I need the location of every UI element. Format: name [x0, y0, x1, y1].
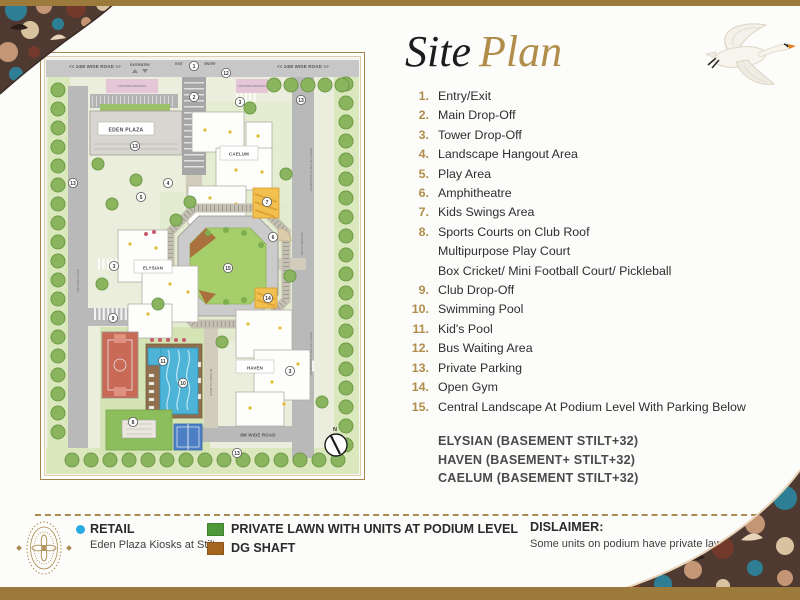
private-lawn-swatch-icon [207, 523, 224, 536]
ramp-label: RAMP TO PODIUM [209, 368, 213, 396]
tree [96, 278, 108, 290]
svg-text:3: 3 [113, 264, 116, 270]
site-plan-svg: << 24M WIDE ROAD >> << 24M WIDE ROAD >> … [40, 52, 365, 480]
bottom-gold-bar [0, 587, 800, 600]
tree [51, 273, 65, 287]
svg-text:2: 2 [193, 95, 196, 101]
svg-text:14: 14 [265, 296, 271, 302]
top-gold-bar [0, 0, 800, 6]
map-marker-3: 3 [285, 366, 294, 375]
tree [255, 453, 269, 467]
map-marker-14: 14 [263, 293, 272, 302]
tree [122, 453, 136, 467]
site-plan-list-item: 4.Landscape Hangout Area [405, 148, 795, 161]
tree [51, 330, 65, 344]
tree [51, 349, 65, 363]
site-plan-list-item: 14.Open Gym [405, 381, 795, 394]
tree [339, 305, 353, 319]
tree [152, 298, 164, 310]
map-marker-10: 10 [178, 378, 187, 387]
map-marker-3: 3 [109, 261, 118, 270]
caelum-label: CAELUM [229, 152, 249, 157]
svg-text:12: 12 [223, 71, 229, 77]
tree [51, 292, 65, 306]
tree [103, 453, 117, 467]
map-marker-3: 3 [235, 97, 244, 106]
site-plan-list-item: 6.Amphitheatre [405, 187, 795, 200]
site-plan-list-item: 5.Play Area [405, 168, 795, 181]
map-marker-11: 11 [158, 356, 167, 365]
legend-private-lawn: PRIVATE LAWN WITH UNITS AT PODIUM LEVEL [207, 522, 518, 536]
haven-label: HAVEN [247, 366, 263, 371]
tree [339, 419, 353, 433]
tree [339, 115, 353, 129]
map-marker-6: 6 [268, 232, 277, 241]
site-plan-list-item: 1.Entry/Exit [405, 90, 795, 103]
tree [339, 324, 353, 338]
tree [179, 453, 193, 467]
tree [339, 191, 353, 205]
site-plan-list-item: 8.Sports Courts on Club Roof [405, 226, 795, 239]
tree [198, 453, 212, 467]
tree [170, 214, 182, 226]
svg-text:3: 3 [289, 369, 292, 375]
title-word-site: Site [405, 27, 471, 76]
svg-text:4: 4 [167, 181, 170, 187]
tree [51, 216, 65, 230]
tree [217, 453, 231, 467]
tree [51, 197, 65, 211]
tree [339, 362, 353, 376]
private-lawn-label: PRIVATE LAWN WITH UNITS AT PODIUM LEVEL [231, 522, 518, 536]
tree [51, 311, 65, 325]
tree [339, 381, 353, 395]
site-plan-list-item: 7.Kids Swings Area [405, 206, 795, 219]
compass-north-label: N [333, 427, 337, 433]
exit-label: EXIT [175, 62, 183, 66]
tree [244, 102, 256, 114]
map-marker-13: 13 [68, 178, 77, 187]
tree [339, 286, 353, 300]
site-plan-list-item: 12.Bus Waiting Area [405, 342, 795, 355]
tree [339, 248, 353, 262]
tree [51, 178, 65, 192]
swan-illustration [688, 16, 796, 94]
map-marker-13: 13 [130, 141, 139, 150]
tree [339, 343, 353, 357]
page-title: SitePlan [405, 28, 562, 76]
site-plan-list-item: 2.Main Drop-Off [405, 109, 795, 122]
stilt-entry-label-top: ENTRY TO STILT/ BASEMENT [309, 148, 313, 191]
tree [339, 96, 353, 110]
svg-text:13: 13 [298, 98, 304, 104]
stilt-entry-label-bottom: ENTRY TO STILT/ BASEMENT [309, 332, 313, 375]
svg-text:5: 5 [140, 195, 143, 201]
tree [312, 453, 326, 467]
tree [141, 453, 155, 467]
tree [51, 140, 65, 154]
map-marker-9: 9 [108, 313, 117, 322]
tree [51, 235, 65, 249]
tree [339, 153, 353, 167]
tree [318, 78, 332, 92]
map-marker-13: 13 [296, 95, 305, 104]
paisley-corner-top-left [0, 0, 175, 102]
elysian-label: ELYSIAN [143, 266, 163, 271]
svg-text:9: 9 [112, 316, 115, 322]
tree [51, 254, 65, 268]
tree [267, 78, 281, 92]
site-plan-list-item: 3.Tower Drop-Off [405, 129, 795, 142]
tree [339, 172, 353, 186]
tree [51, 121, 65, 135]
retail-dot-icon [76, 525, 85, 534]
site-plan-list-item: Multipurpose Play Court [405, 245, 795, 258]
tree [280, 168, 292, 180]
tree [293, 453, 307, 467]
tree [284, 270, 296, 282]
retail-label: RETAIL [90, 522, 135, 536]
road-label-bottom: 8M WIDE ROAD [240, 433, 275, 438]
road-label-left: 6M WIDE ROAD [76, 268, 80, 292]
svg-text:13: 13 [132, 144, 138, 150]
tree [92, 158, 104, 170]
svg-text:13: 13 [70, 181, 76, 187]
site-plan-map: << 24M WIDE ROAD >> << 24M WIDE ROAD >> … [40, 52, 365, 480]
map-marker-15: 15 [223, 263, 232, 272]
tree [339, 134, 353, 148]
title-word-plan: Plan [479, 27, 562, 76]
tree [51, 387, 65, 401]
visitors-parking-label-right: VISITORS PARKING [238, 84, 268, 88]
tree [51, 159, 65, 173]
svg-text:1: 1 [193, 64, 196, 70]
tree [339, 210, 353, 224]
road-label-right: 6M WIDE ROAD [300, 232, 304, 256]
eden-plaza-label: EDEN PLAZA [109, 128, 144, 134]
svg-text:13: 13 [234, 451, 240, 457]
svg-text:8: 8 [132, 420, 135, 426]
tree [316, 396, 328, 408]
tree [51, 425, 65, 439]
brochure-page: SitePlan 1.Entry/Exit2.Main Drop-Off3.To… [0, 0, 800, 600]
map-marker-13: 13 [232, 448, 241, 457]
svg-text:11: 11 [160, 359, 166, 365]
entry-label: ENTRY [204, 62, 216, 66]
dg-shaft-swatch-icon [207, 542, 224, 555]
site-plan-list-item: 11.Kid's Pool [405, 323, 795, 336]
dg-shaft-label: DG SHAFT [231, 541, 295, 555]
legend-dg-shaft: DG SHAFT [207, 541, 518, 555]
map-marker-8: 8 [128, 417, 137, 426]
svg-text:7: 7 [266, 200, 269, 206]
site-plan-list-item: 10.Swimming Pool [405, 303, 795, 316]
map-marker-7: 7 [262, 197, 271, 206]
tree [65, 453, 79, 467]
tree [106, 198, 118, 210]
tree [335, 78, 349, 92]
site-plan-list-item: Box Cricket/ Mini Football Court/ Pickle… [405, 265, 795, 278]
road-label-top-right: << 24M WIDE ROAD >> [277, 64, 329, 69]
map-marker-12: 12 [221, 68, 230, 77]
tree [184, 196, 196, 208]
tree [301, 78, 315, 92]
svg-text:10: 10 [180, 381, 186, 387]
tree [284, 78, 298, 92]
map-marker-4: 4 [163, 178, 172, 187]
tree [84, 453, 98, 467]
svg-text:15: 15 [225, 266, 231, 272]
map-marker-5: 5 [136, 192, 145, 201]
map-marker-1: 1 [189, 61, 198, 70]
retail-sublabel: Eden Plaza Kiosks at Stilt [90, 539, 215, 551]
site-plan-list: 1.Entry/Exit2.Main Drop-Off3.Tower Drop-… [405, 90, 795, 420]
legend-zones: PRIVATE LAWN WITH UNITS AT PODIUM LEVEL … [207, 522, 518, 560]
paisley-corner-bottom-right [545, 428, 800, 600]
svg-text:3: 3 [239, 100, 242, 106]
svg-text:6: 6 [272, 235, 275, 241]
tree [51, 368, 65, 382]
medallion-ornament [15, 518, 73, 578]
legend-retail: RETAIL Eden Plaza Kiosks at Stilt [76, 522, 215, 551]
site-plan-list-item: 9.Club Drop-Off [405, 284, 795, 297]
tree [51, 406, 65, 420]
site-plan-list-item: 15.Central Landscape At Podium Level Wit… [405, 401, 795, 414]
tree [339, 267, 353, 281]
tree [51, 102, 65, 116]
tree [274, 453, 288, 467]
map-marker-2: 2 [189, 92, 198, 101]
tree [339, 400, 353, 414]
tree [130, 174, 142, 186]
tree [216, 336, 228, 348]
tree [339, 229, 353, 243]
tree [160, 453, 174, 467]
site-plan-list-item: 13.Private Parking [405, 362, 795, 375]
